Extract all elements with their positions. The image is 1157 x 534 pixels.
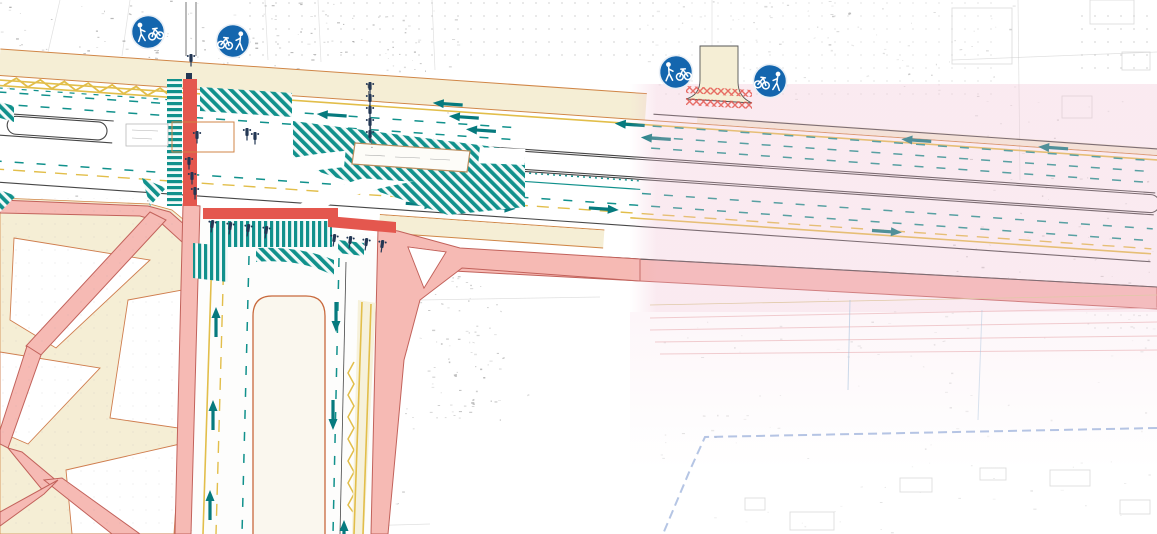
bike-crossing-west bbox=[167, 79, 182, 206]
traffic-plan-canvas bbox=[0, 0, 1157, 534]
pedestrian-crossing-west bbox=[183, 79, 197, 206]
pedestrian-crossing-south-a bbox=[203, 208, 338, 219]
bus-shelter-box bbox=[126, 124, 168, 146]
side-street-median bbox=[253, 296, 325, 534]
plan-drawing bbox=[0, 0, 1157, 534]
park-area bbox=[0, 198, 200, 534]
phase-overlay bbox=[630, 84, 1157, 470]
bike-crossing-south bbox=[210, 221, 332, 247]
park-texture bbox=[0, 198, 200, 534]
orchard-dot-grid bbox=[245, 0, 655, 62]
